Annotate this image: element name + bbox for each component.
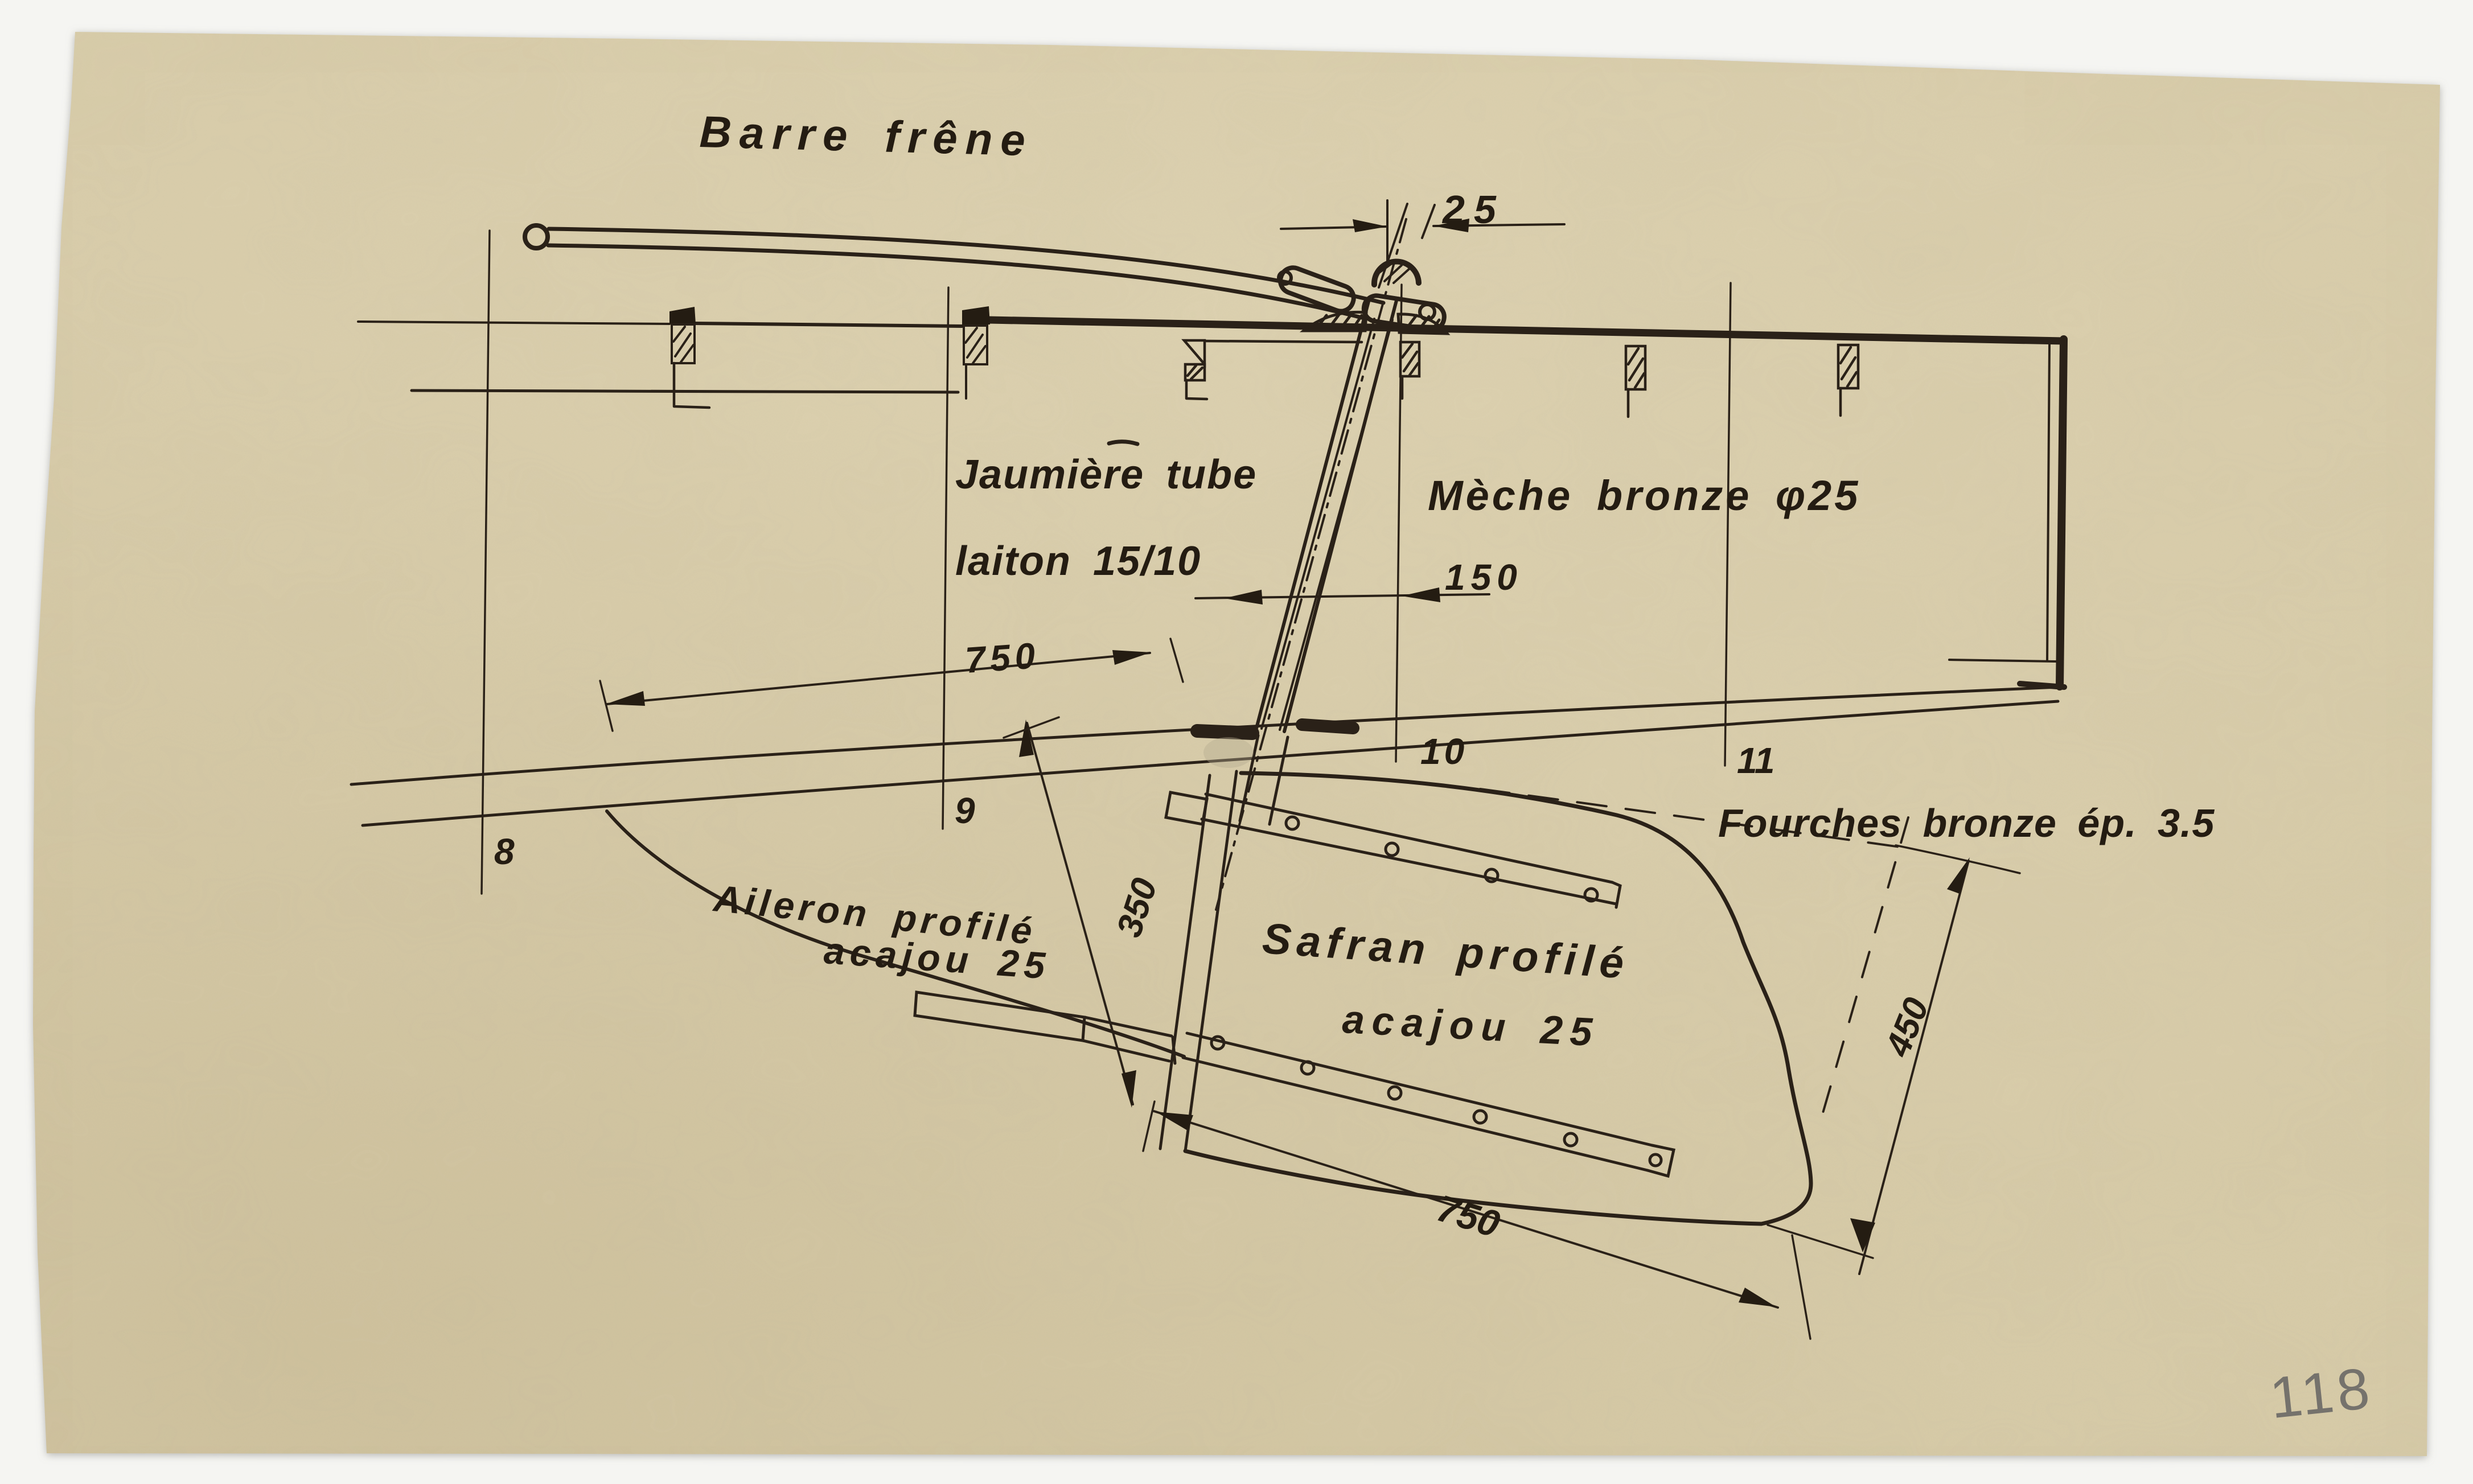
svg-text:Jaumière tube: Jaumière tube bbox=[955, 452, 1257, 498]
svg-text:9: 9 bbox=[955, 790, 975, 831]
svg-text:8: 8 bbox=[494, 831, 515, 872]
svg-text:laiton 15/10: laiton 15/10 bbox=[955, 538, 1201, 584]
svg-text:150: 150 bbox=[1445, 557, 1523, 598]
svg-text:Barre frêne: Barre frêne bbox=[699, 106, 1034, 165]
svg-text:Fourches bronze ép. 3.5: Fourches bronze ép. 3.5 bbox=[1718, 801, 2215, 845]
svg-text:25: 25 bbox=[1441, 187, 1505, 232]
svg-text:750: 750 bbox=[964, 635, 1041, 681]
svg-text:11: 11 bbox=[1737, 740, 1774, 781]
svg-text:Mèche bronze φ25: Mèche bronze φ25 bbox=[1428, 472, 1860, 519]
svg-text:10: 10 bbox=[1420, 731, 1468, 772]
svg-text:118: 118 bbox=[2267, 1355, 2376, 1430]
